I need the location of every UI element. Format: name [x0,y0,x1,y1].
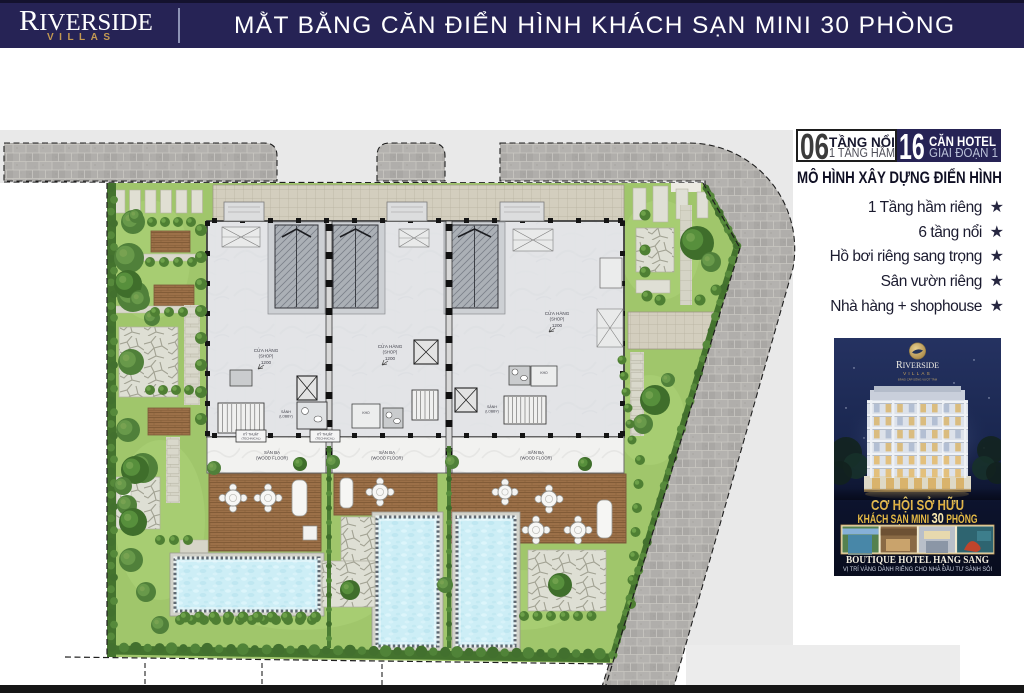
svg-text:ĐẬNG CẤP SỐNG VƯỢT TẦM: ĐẬNG CẤP SỐNG VƯỢT TẦM [898,377,938,382]
svg-text:CỬA HÀNG: CỬA HÀNG [545,310,570,316]
svg-text:(WOOD FLOOR): (WOOD FLOOR) [371,456,403,461]
svg-text:CỬA HÀNG: CỬA HÀNG [378,343,403,349]
svg-text:(WOOD FLOOR): (WOOD FLOOR) [256,456,288,461]
svg-text:SẢNH: SẢNH [281,409,291,414]
svg-text:1200: 1200 [261,360,272,365]
svg-text:CƠ HỘI SỞ HỮU: CƠ HỘI SỞ HỮU [871,496,964,514]
svg-text:SÂN BẠ: SÂN BẠ [528,450,544,455]
svg-text:(SHOP): (SHOP) [550,317,565,322]
svg-text:(LOBBY): (LOBBY) [279,415,293,419]
svg-text:KHO: KHO [362,411,370,415]
svg-text:(TECHNICAL): (TECHNICAL) [315,437,334,441]
svg-text:SẢNH: SẢNH [487,404,497,409]
svg-text:BOUTIQUE HOTEL HẠNG SANG: BOUTIQUE HOTEL HẠNG SANG [846,555,989,566]
svg-text:(LOBBY): (LOBBY) [485,410,499,414]
svg-text:CỬA HÀNG: CỬA HÀNG [254,347,279,353]
svg-text:SÂN BẠ: SÂN BẠ [379,450,395,455]
svg-text:(SHOP): (SHOP) [259,354,274,359]
svg-text:VỊ TRÍ VÀNG DÀNH RIÊNG CHO NHÀ: VỊ TRÍ VÀNG DÀNH RIÊNG CHO NHÀ ĐẦU TƯ SÀ… [843,565,992,573]
svg-text:(WOOD FLOOR): (WOOD FLOOR) [520,456,552,461]
svg-text:1200: 1200 [385,356,396,361]
svg-text:VILLAS: VILLAS [903,371,932,376]
svg-text:SÂN BẠ: SÂN BẠ [264,450,280,455]
svg-text:(TECHNICAL): (TECHNICAL) [241,437,260,441]
svg-text:KHO: KHO [540,371,548,375]
svg-text:(SHOP): (SHOP) [383,350,398,355]
svg-text:RIVERSIDE: RIVERSIDE [896,360,939,371]
svg-text:1200: 1200 [552,323,563,328]
